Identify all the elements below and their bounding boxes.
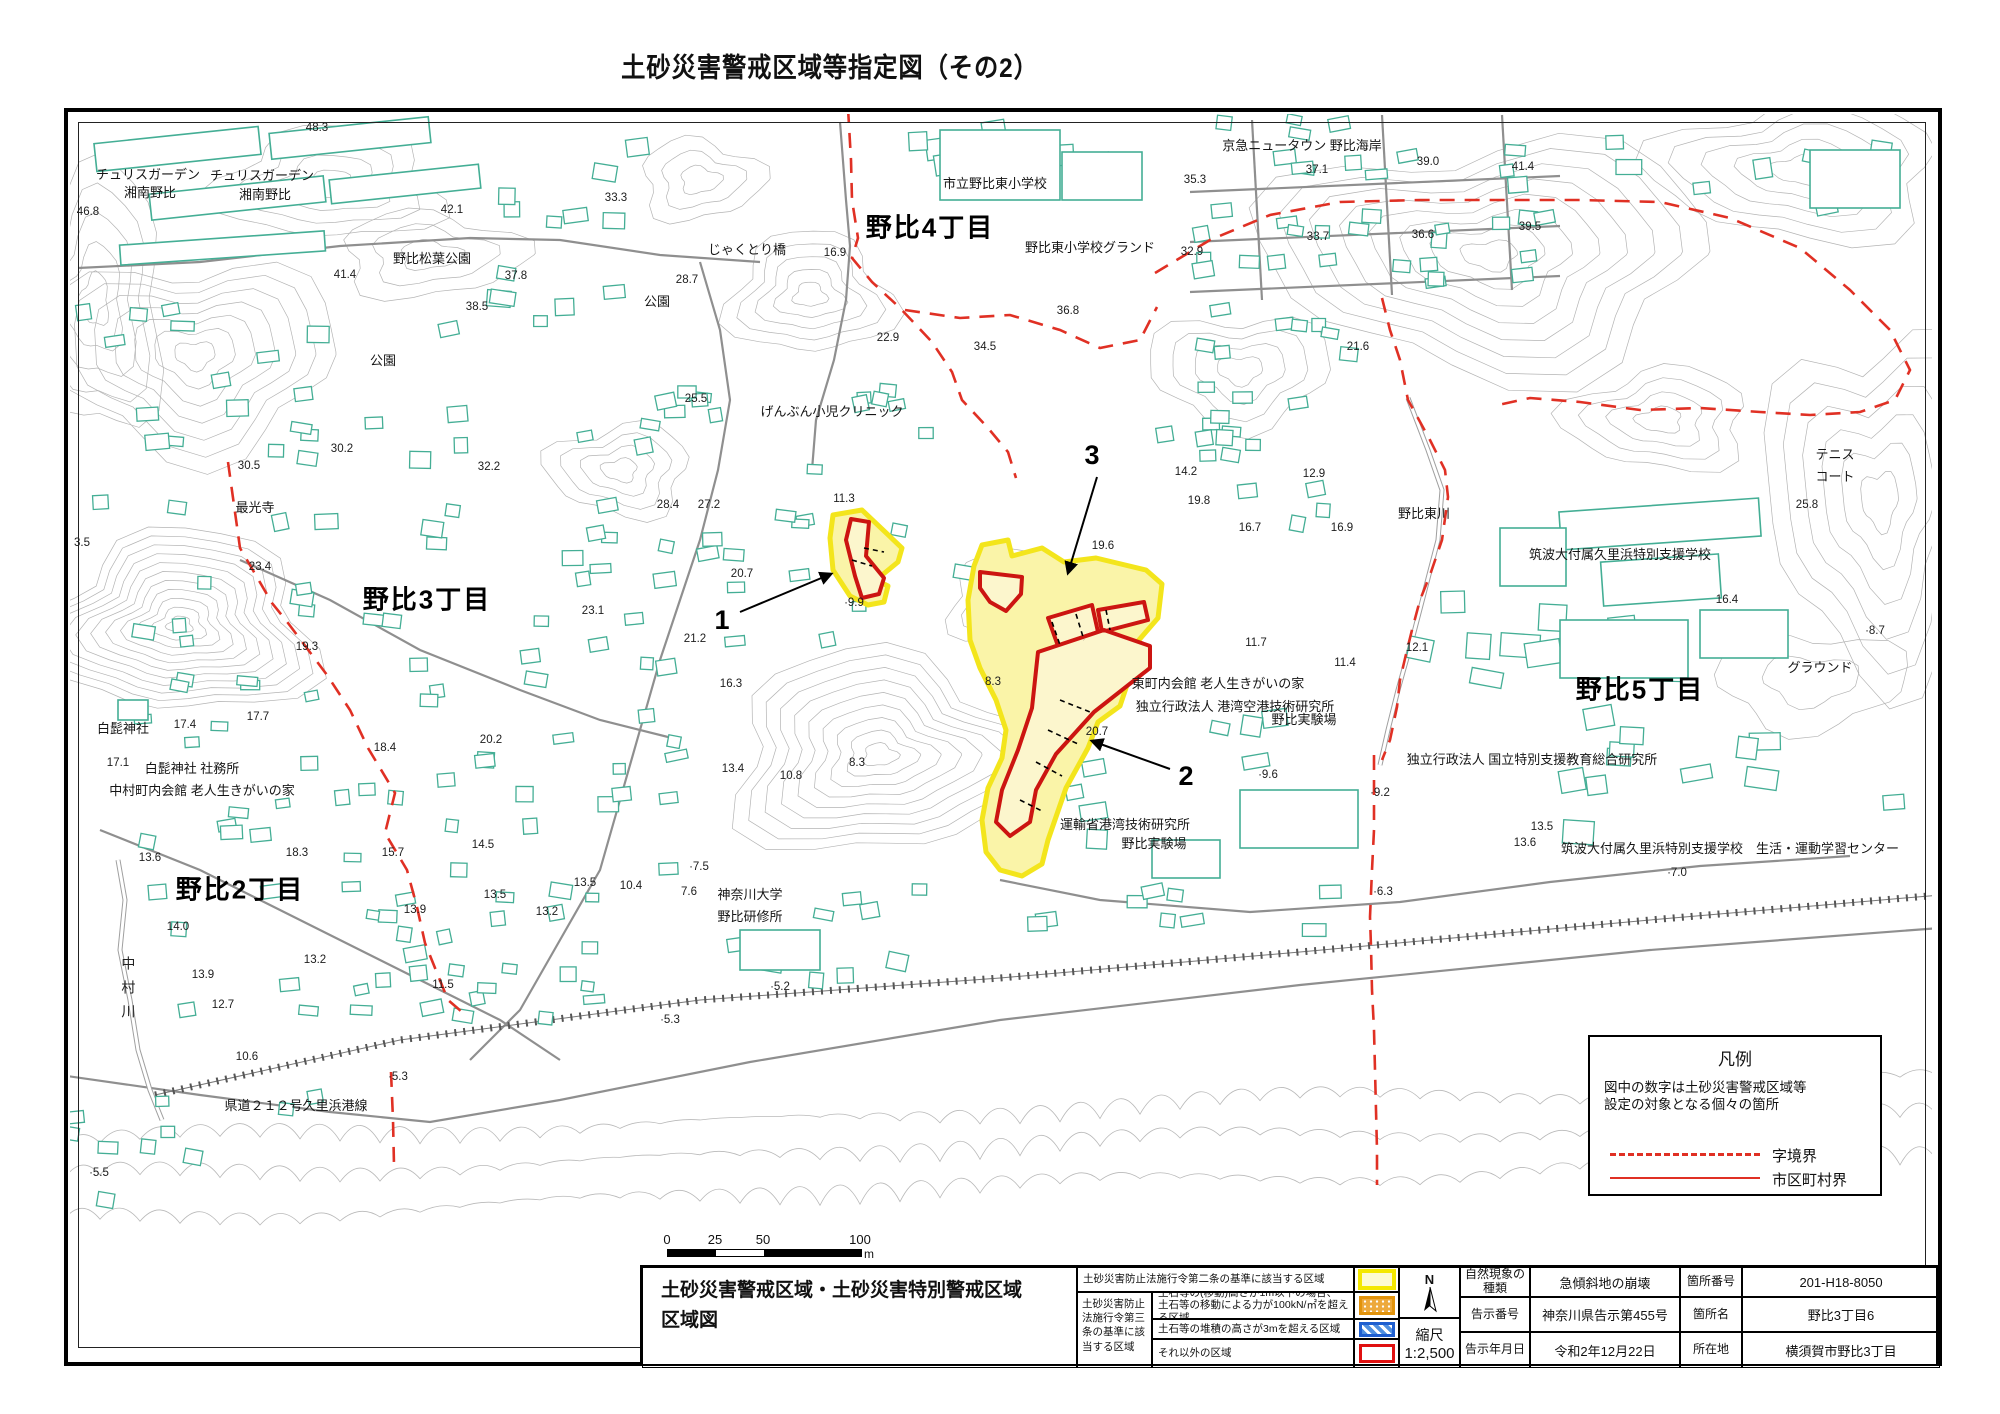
scale-bar: 0 25 50 100 m	[655, 1232, 890, 1262]
compass-cell: N	[1399, 1267, 1460, 1318]
detail-value: 令和2年12月22日	[1530, 1332, 1680, 1368]
zone-legend-row1-swatch	[1354, 1267, 1399, 1292]
zone-legend-row4-swatch	[1354, 1339, 1399, 1368]
legend-item-municipal-boundary: 市区町村界	[1604, 1169, 1870, 1187]
zone-legend-row2-label: 土石等の(移動)高さが1m以下の場合、土石等の移動による力が100kN/㎡を超え…	[1152, 1292, 1354, 1319]
legend-note: 図中の数字は土砂災害警戒区域等 設定の対象となる個々の箇所	[1604, 1080, 1868, 1114]
zone-legend-row4-label: それ以外の区域	[1152, 1339, 1354, 1368]
scale-tick: 0	[663, 1232, 670, 1247]
north-arrow-icon	[1422, 1287, 1438, 1313]
detail-value: 野比3丁目6	[1742, 1297, 1940, 1332]
detail-label: 告示番号	[1460, 1297, 1530, 1332]
scale-unit: m	[864, 1247, 874, 1261]
scale-tick: 50	[756, 1232, 770, 1247]
scale-tick: 100	[849, 1232, 871, 1247]
detail-value: 急傾斜地の崩壊	[1530, 1267, 1680, 1297]
zone-legend-row3-label: 土石等の堆積の高さが3mを超える区域	[1152, 1319, 1354, 1339]
zone-legend-row1-label: 土砂災害防止法施行令第二条の基準に該当する区域	[1077, 1267, 1354, 1292]
detail-label: 告示年月日	[1460, 1332, 1530, 1368]
zone-legend-row2-swatch	[1354, 1292, 1399, 1319]
hazard-map-page: 土砂災害警戒区域等指定図（その2） 48.346.842.141.438.533…	[0, 0, 2000, 1414]
legend-title: 凡例	[1590, 1045, 1880, 1070]
scale-cell: 縮尺 1:2,500	[1399, 1318, 1460, 1368]
orange-zone-swatch-icon	[1359, 1296, 1395, 1315]
detail-label: 自然現象の種類	[1460, 1267, 1530, 1297]
solid-red-line-icon	[1610, 1177, 1760, 1179]
blue-zone-swatch-icon	[1359, 1322, 1395, 1337]
info-table: 土砂災害警戒区域・土砂災害特別警戒区域区域図 土砂災害防止法施行令第二条の基準に…	[640, 1265, 1938, 1366]
red-zone-swatch-icon	[1359, 1344, 1395, 1363]
zone-legend-row3-swatch	[1354, 1319, 1399, 1339]
detail-value: 神奈川県告示第455号	[1530, 1297, 1680, 1332]
map-legend-box: 凡例 図中の数字は土砂災害警戒区域等 設定の対象となる個々の箇所 字境界 市区町…	[1588, 1035, 1882, 1196]
detail-label: 箇所名	[1680, 1297, 1742, 1332]
detail-value: 201-H18-8050	[1742, 1267, 1940, 1297]
scale-tick: 25	[708, 1232, 722, 1247]
zone-legend-group-label: 土砂災害防止法施行令第三条の基準に該当する区域	[1077, 1292, 1152, 1368]
legend-item-aza-boundary: 字境界	[1604, 1145, 1870, 1163]
detail-label: 箇所番号	[1680, 1267, 1742, 1297]
yellow-zone-swatch-icon	[1358, 1269, 1396, 1290]
info-map-title: 土砂災害警戒区域・土砂災害特別警戒区域区域図	[642, 1267, 1077, 1368]
scale-bar-segments	[667, 1249, 862, 1257]
detail-label: 所在地	[1680, 1332, 1742, 1368]
dashed-red-line-icon	[1610, 1153, 1760, 1156]
detail-value: 横須賀市野比3丁目	[1742, 1332, 1940, 1368]
